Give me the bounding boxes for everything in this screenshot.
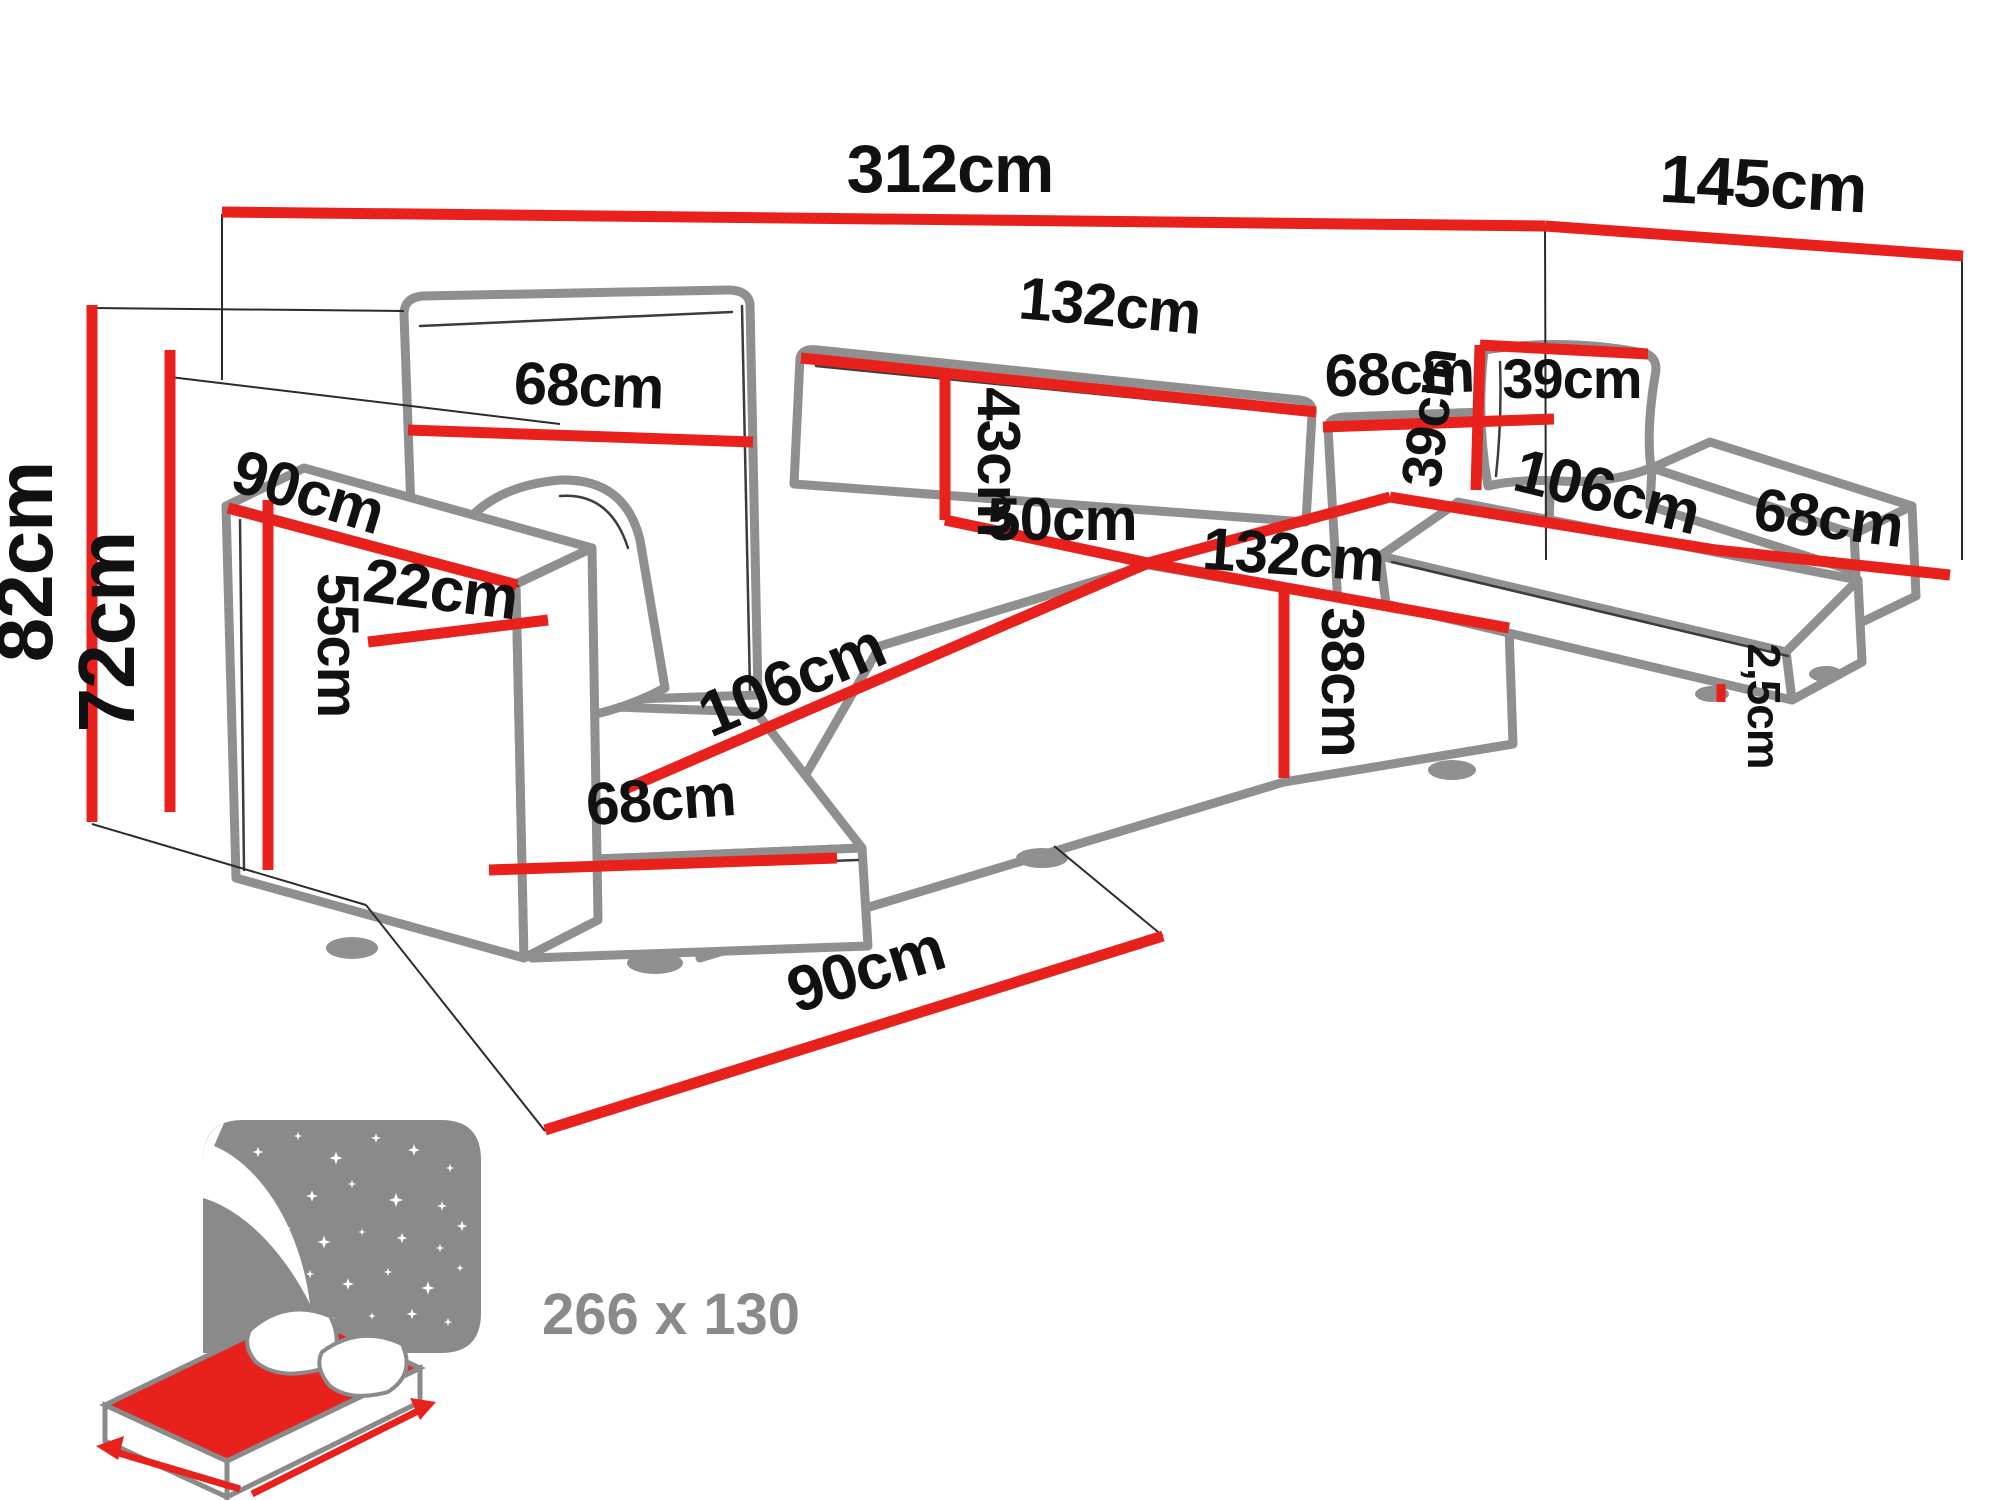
dim-total-depth-line (1545, 226, 1963, 256)
diagram-canvas: 312cm 145cm 68cm 132cm 68cm 43cm 50cm 13… (0, 0, 2000, 1500)
dim-total-width-line (222, 212, 1545, 226)
extension-line (92, 308, 404, 311)
starry-night-panel (203, 1120, 481, 1353)
total-depth-label: 145cm (1658, 141, 1868, 228)
pillow-width-label: 39cm (1502, 347, 1641, 410)
seat-front-height-label: 38cm (1309, 607, 1376, 756)
seat-left-width-label: 68cm (584, 761, 738, 838)
total-width-label: 312cm (847, 131, 1054, 207)
dim-pillow-height-line (1476, 345, 1480, 490)
extension-line (1054, 846, 1163, 936)
sofa-foot (326, 937, 378, 959)
armrest-height-label: 55cm (305, 573, 370, 717)
sofa-foot (627, 952, 683, 974)
bed-pillow-right (319, 1336, 406, 1396)
sofa-dimension-diagram: 312cm 145cm 68cm 132cm 68cm 43cm 50cm 13… (0, 0, 2000, 1500)
frame-height-label: 72cm (62, 532, 151, 733)
backrest-center-width-label: 132cm (1016, 264, 1203, 347)
leg-height-label: 2,5cm (1738, 643, 1790, 768)
overall-height-label: 82cm (0, 462, 69, 663)
sofa-foot (1428, 760, 1476, 780)
sleeping-area-icon: 266 x 130 (96, 1120, 800, 1497)
seat-fold-depth-label: 50cm (987, 486, 1136, 553)
seat-center-width-label: 132cm (1200, 515, 1386, 595)
sofa-foot (1809, 666, 1843, 682)
left-armrest-front-face (516, 548, 598, 958)
backrest-left-width-label: 68cm (513, 349, 665, 421)
sleeping-area-size-label: 266 x 130 (542, 1282, 800, 1347)
